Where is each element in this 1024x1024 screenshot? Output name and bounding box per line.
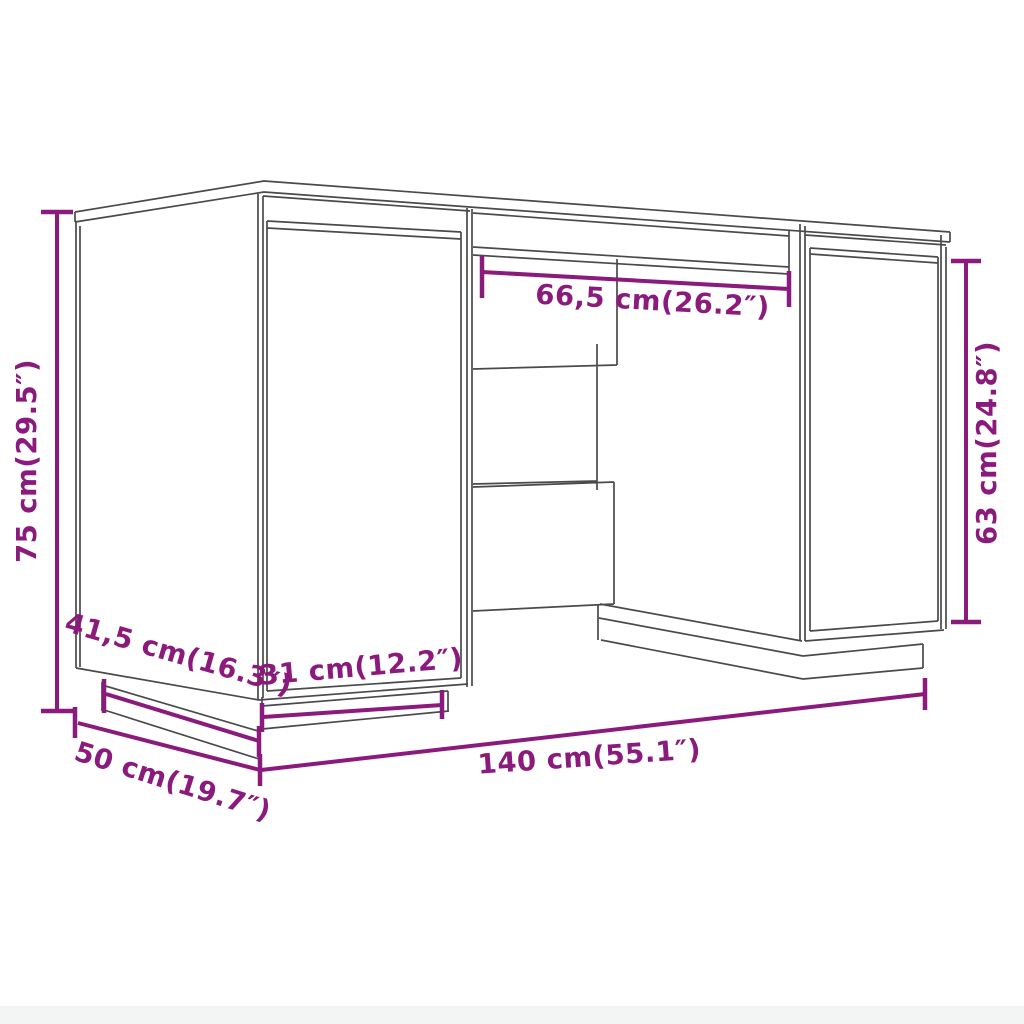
right-cabinet-door (810, 248, 938, 631)
right-cabinet (800, 224, 946, 641)
dimension-cabinet-height: 63 cm(24.8″) (951, 261, 1003, 622)
left-cabinet-door (259, 196, 470, 700)
dimension-label-height: 75 cm(29.5″) (11, 359, 43, 563)
dimension-label-cabinet-height: 63 cm(24.8″) (971, 341, 1003, 545)
dimension-line (263, 705, 442, 717)
right-plinth (598, 604, 923, 679)
dimension-overall-width: 140 cm(55.1″) (261, 678, 925, 781)
left-cabinet-side-edge (467, 208, 472, 687)
desk-dimension-diagram: 75 cm(29.5″) 66,5 cm(26.2″) 63 cm(24.8″)… (0, 0, 1024, 1024)
dimension-overall-depth: 50 cm(19.7″) (71, 707, 275, 827)
desktop-slab (75, 181, 950, 242)
product-dimension-image: 75 cm(29.5″) 66,5 cm(26.2″) 63 cm(24.8″)… (0, 0, 1024, 1024)
dimension-center-drawer-width: 66,5 cm(26.2″) (482, 256, 789, 324)
floor-strip (0, 1006, 1024, 1024)
center-drawer-strip (473, 213, 789, 274)
